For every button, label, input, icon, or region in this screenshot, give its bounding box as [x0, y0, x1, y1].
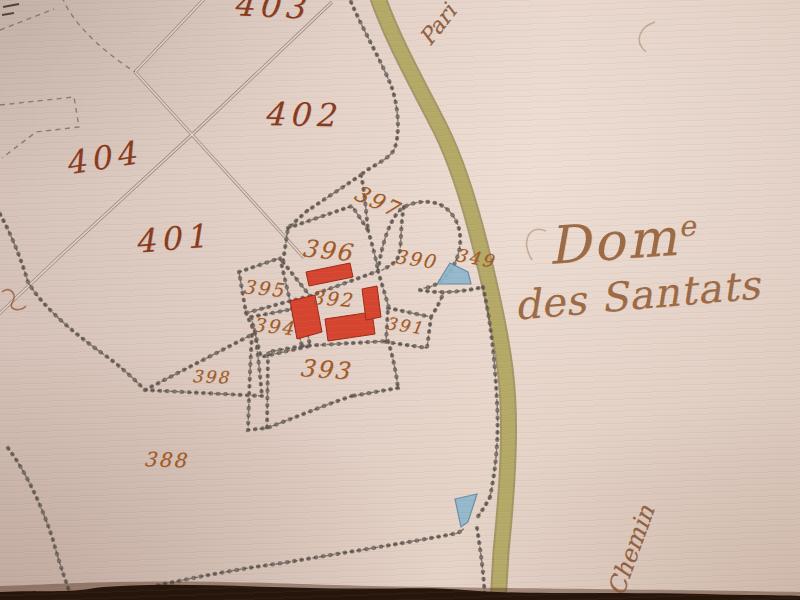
parcel-label-395: 395 — [242, 275, 286, 301]
parcel-label-393: 393 — [298, 354, 352, 386]
calligraphy-flourish-top — [639, 22, 655, 52]
building-footprint-east — [362, 286, 381, 320]
parcel-label-394: 394 — [252, 313, 296, 339]
estate-name-superscript: e — [677, 208, 699, 243]
parcel-label-392: 392 — [310, 286, 354, 311]
calligraphy-flourish-dom — [527, 229, 546, 260]
estate-name-word: Dom — [546, 207, 681, 276]
parcel-label-396: 396 — [300, 234, 354, 267]
estate-name-line1: Dome — [546, 205, 701, 275]
parcel-label-398: 398 — [191, 366, 230, 387]
parcel-label-403: 403 — [232, 0, 310, 27]
parcel-label-388: 388 — [143, 447, 188, 473]
dashed-parcel-boundary — [0, 0, 135, 158]
parcel-label-401: 401 — [133, 216, 212, 260]
cadastral-map: 403 402 404 401 397 396 395 392 394 391 … — [0, 0, 800, 600]
road-path — [376, 0, 509, 600]
pond-south — [455, 494, 477, 527]
parcel-label-402: 402 — [263, 95, 340, 134]
corner-tick-marks — [2, 4, 19, 15]
